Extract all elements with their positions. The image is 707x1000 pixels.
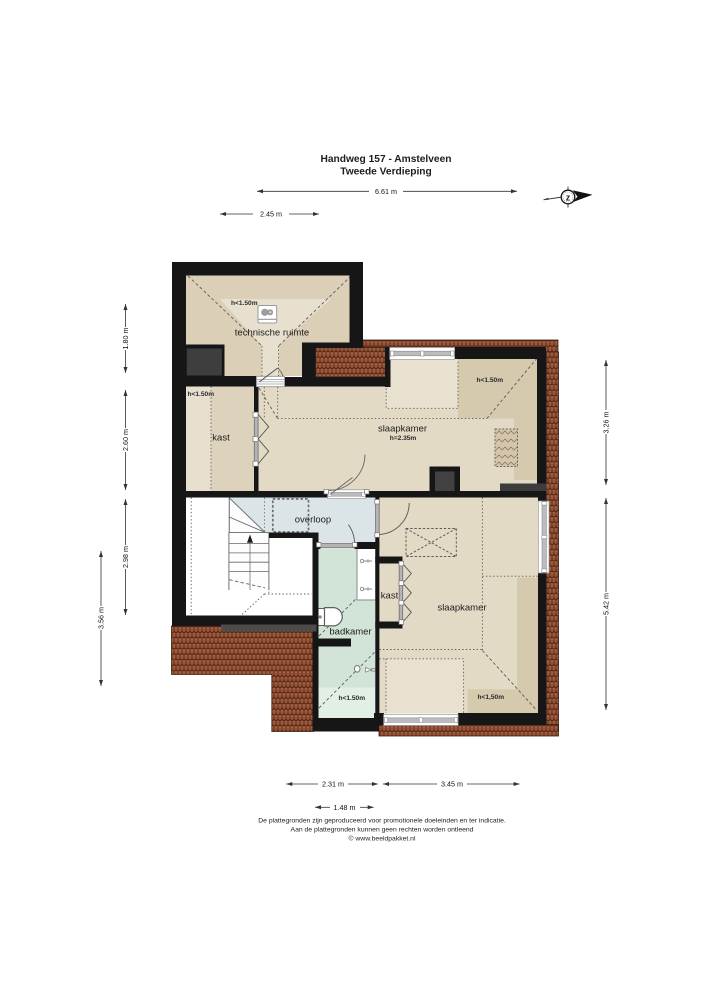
- svg-text:2.98 m: 2.98 m: [121, 546, 130, 568]
- svg-text:h<1.50m: h<1.50m: [339, 695, 366, 702]
- svg-text:badkamer: badkamer: [329, 627, 371, 638]
- svg-text:2.31 m: 2.31 m: [322, 780, 344, 789]
- svg-text:3.26 m: 3.26 m: [602, 412, 611, 434]
- svg-text:Tweede Verdieping: Tweede Verdieping: [340, 167, 432, 178]
- svg-text:2.60 m: 2.60 m: [121, 429, 130, 451]
- svg-text:kast: kast: [212, 433, 230, 444]
- svg-text:h=2.35m: h=2.35m: [390, 435, 417, 442]
- svg-text:technische ruimte: technische ruimte: [235, 328, 309, 339]
- svg-text:Handweg 157 - Amstelveen: Handweg 157 - Amstelveen: [321, 154, 452, 165]
- svg-text:1.48 m: 1.48 m: [334, 803, 356, 812]
- svg-text:Aan de plattegronden kunnen ge: Aan de plattegronden kunnen geen rechten…: [291, 827, 474, 834]
- svg-text:1.80 m: 1.80 m: [121, 328, 130, 350]
- svg-text:h<1.50m: h<1.50m: [188, 391, 215, 398]
- svg-text:© www.beeldpakket.nl: © www.beeldpakket.nl: [349, 835, 416, 843]
- svg-text:slaapkamer: slaapkamer: [378, 424, 427, 435]
- svg-text:h<1,50m: h<1,50m: [478, 694, 505, 701]
- svg-text:De plattegronden zijn geproduc: De plattegronden zijn geproduceerd voor …: [258, 818, 506, 825]
- svg-text:kast: kast: [381, 591, 399, 602]
- svg-text:overloop: overloop: [295, 515, 331, 526]
- svg-text:2.45 m: 2.45 m: [260, 210, 282, 219]
- svg-text:h<1.50m: h<1.50m: [231, 300, 258, 307]
- svg-text:5.42 m: 5.42 m: [602, 593, 611, 615]
- svg-text:h<1.50m: h<1.50m: [477, 377, 504, 384]
- svg-text:3.45 m: 3.45 m: [441, 780, 463, 789]
- svg-text:3.56 m: 3.56 m: [97, 607, 106, 629]
- svg-text:slaapkamer: slaapkamer: [437, 603, 486, 614]
- svg-text:z: z: [566, 192, 571, 202]
- svg-text:6.61 m: 6.61 m: [375, 187, 397, 196]
